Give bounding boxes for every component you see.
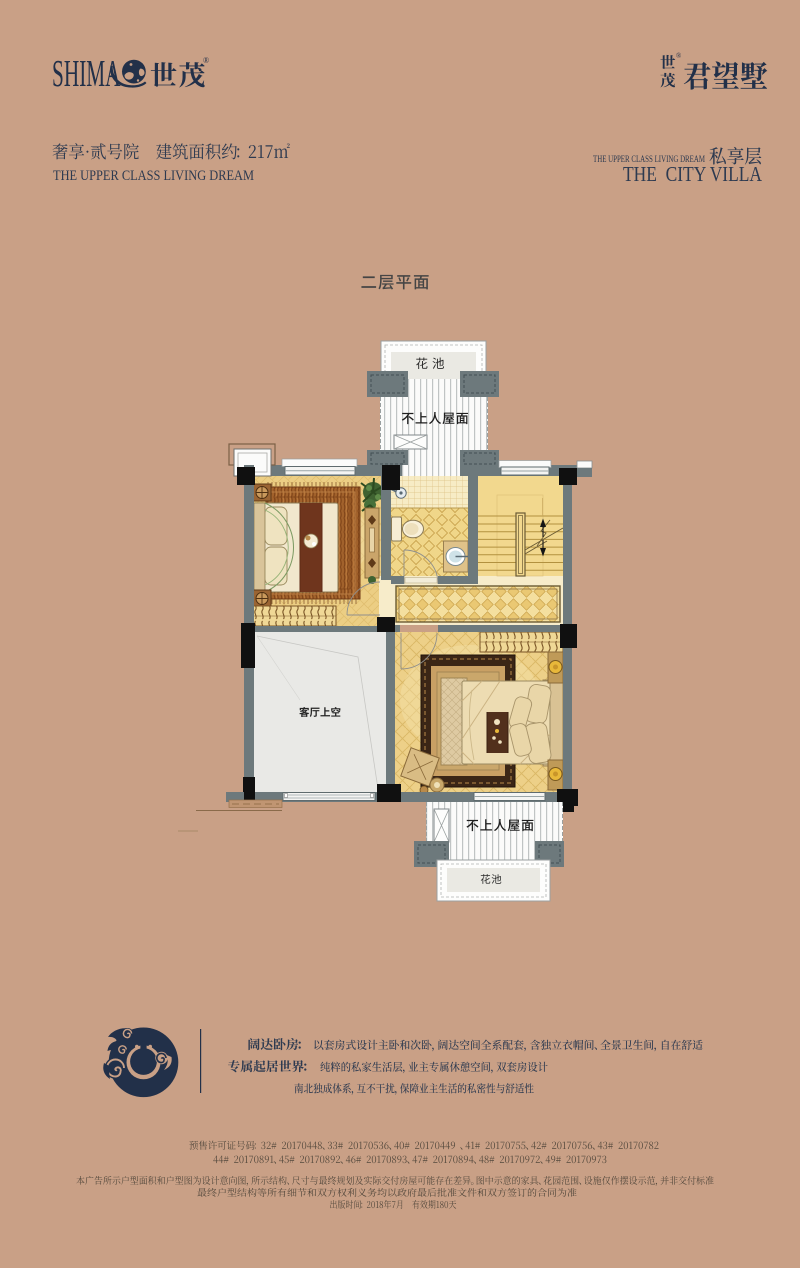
svg-text:THE UPPER CLASS LIVING DREAM: THE UPPER CLASS LIVING DREAM bbox=[53, 168, 254, 184]
svg-text:THE CITY VILLA: THE CITY VILLA bbox=[623, 162, 763, 186]
svg-text:®: ® bbox=[203, 56, 209, 65]
svg-text:SHIMA: SHIMA bbox=[52, 53, 121, 95]
svg-text:®: ® bbox=[676, 52, 682, 60]
